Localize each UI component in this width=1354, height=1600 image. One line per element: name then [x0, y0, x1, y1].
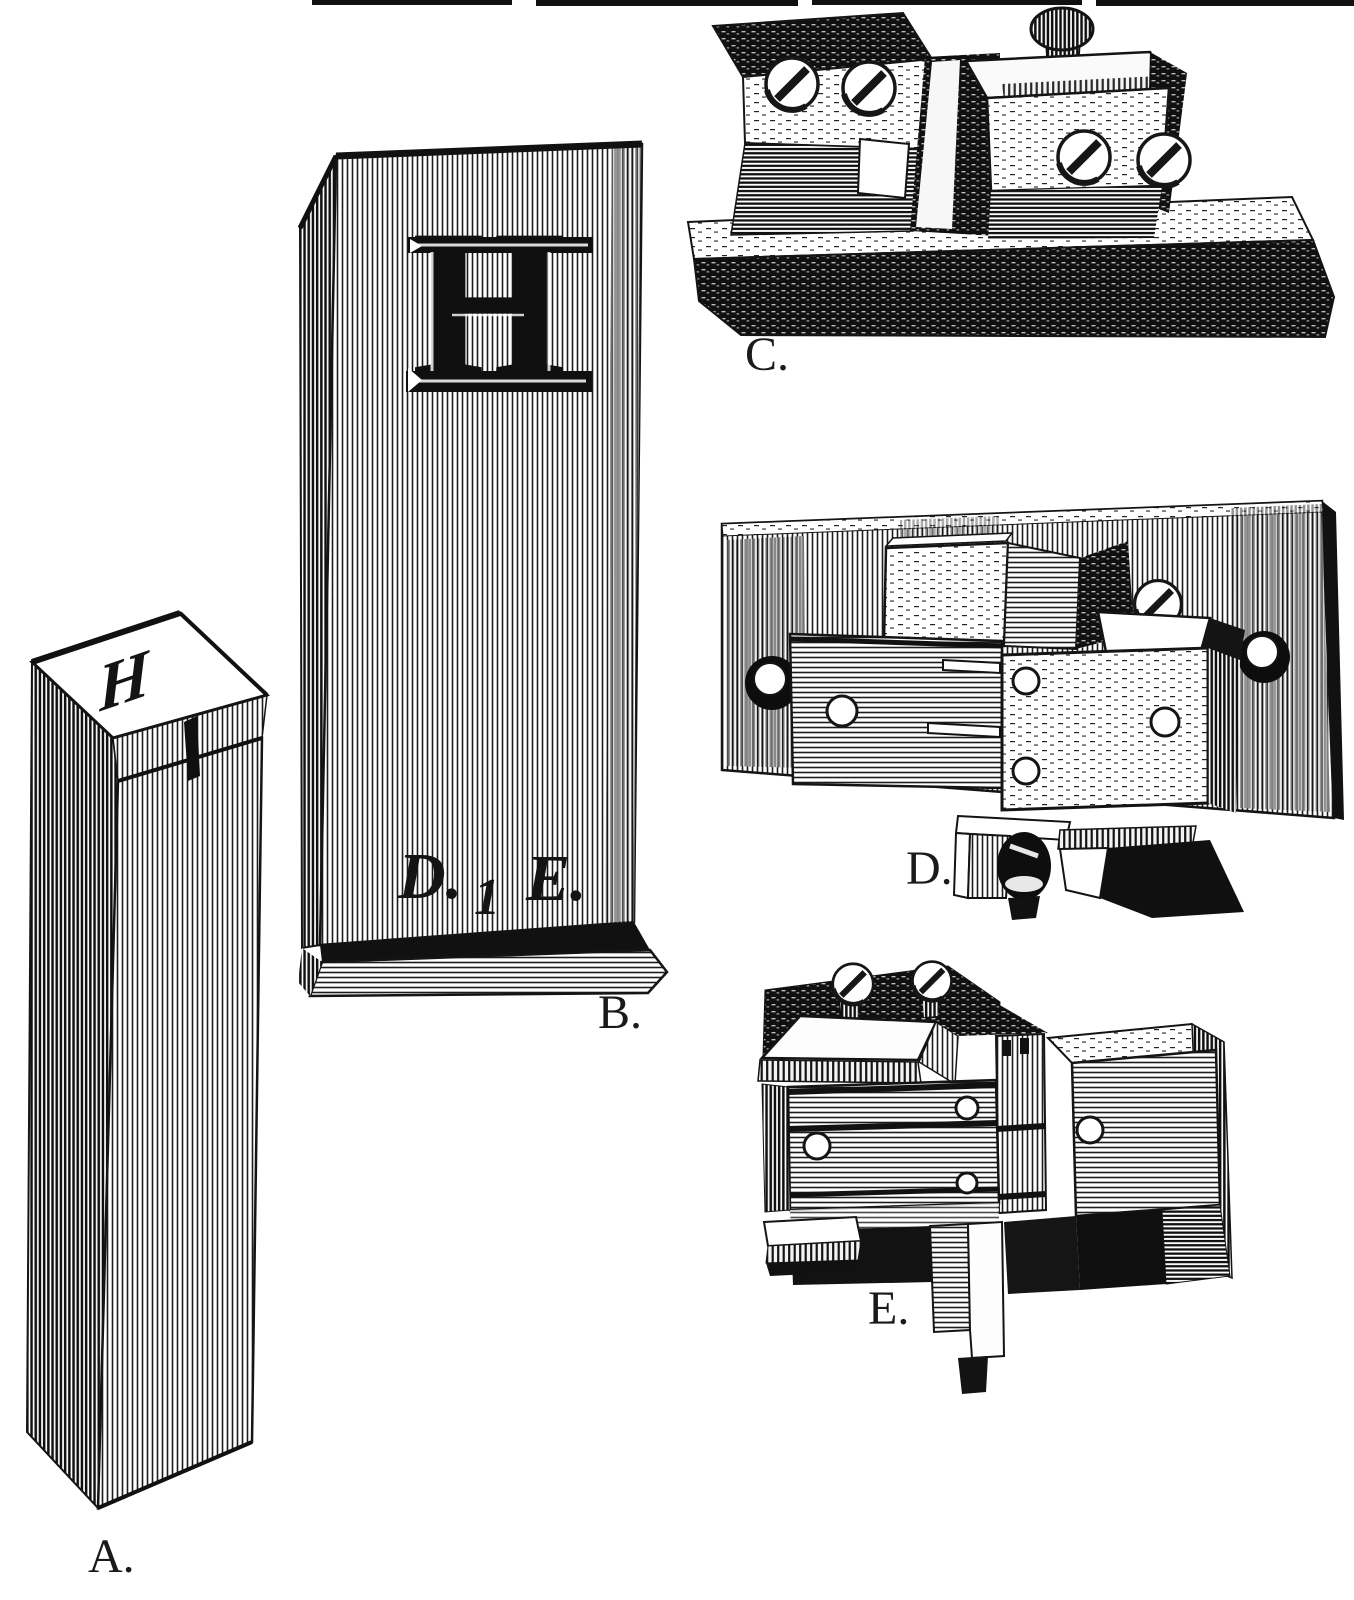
figure-e-label: E. [868, 1282, 909, 1335]
body-hole [804, 1133, 830, 1159]
tongue-hatched [930, 1224, 970, 1332]
artifact-mark [536, 0, 798, 6]
top-plate-knurl [758, 1060, 921, 1083]
wood-block-front [884, 543, 1008, 646]
column-mark [1020, 1038, 1029, 1054]
thumbscrew-tip [1008, 896, 1040, 920]
figure-d-label: D. [906, 842, 953, 895]
left-pin-head [754, 663, 786, 695]
artifact-mark [812, 0, 1082, 5]
scan-artifact-top-edge [312, 0, 1354, 6]
lower-step-dark [1076, 1210, 1166, 1290]
carriage-hole [1151, 708, 1179, 736]
engraving-plate: H D. 1 E. B. H A. [0, 0, 1354, 1600]
plate-hole [827, 696, 857, 726]
figure-b-label: B. [598, 986, 642, 1039]
founders-mark-numeral: 1 [474, 869, 500, 926]
carriage-hole [1013, 668, 1039, 694]
right-pin-head [1246, 636, 1278, 668]
carriage-side-shade [1208, 648, 1240, 813]
illustration-canvas: H D. 1 E. B. H A. [0, 0, 1354, 1600]
left-half-step-notch [858, 139, 909, 198]
body-hole [956, 1097, 978, 1119]
figure-e-mould-assembled: E. [758, 962, 1232, 1395]
clamp-shadow-arm [1100, 840, 1244, 918]
column-seam [997, 1126, 1045, 1129]
figure-b-type-model: H D. 1 E. B. [298, 144, 667, 1039]
artifact-mark [312, 0, 512, 5]
tongue-tip [958, 1356, 988, 1394]
figure-a-label: A. [88, 1530, 135, 1583]
figure-c-mould-on-base: H C. [688, 8, 1334, 381]
artifact-mark [1096, 0, 1354, 6]
slotted-screw [913, 962, 952, 1001]
wood-block-side [1004, 543, 1080, 649]
figure-d-mould-half: D. [722, 501, 1344, 920]
founders-mark-left: D. [397, 840, 462, 913]
column-seam [998, 1194, 1046, 1197]
knurled-thumbscrew [1031, 8, 1093, 50]
tongue-white [968, 1222, 1004, 1358]
type-a-front-face [98, 738, 262, 1508]
slide-rod [943, 660, 1000, 673]
slotted-screw [833, 964, 874, 1005]
slide-plate [790, 634, 1002, 788]
lower-step-hatched [1162, 1205, 1230, 1284]
right-half-lower-band [988, 186, 1162, 239]
thumbscrew-band [1005, 876, 1043, 892]
block-b-letter: H [414, 188, 564, 423]
founders-mark-right: E. [525, 842, 587, 915]
right-block-hole [1077, 1117, 1103, 1143]
under-block-shadow [1004, 1216, 1080, 1294]
carriage-hole [1013, 758, 1039, 784]
figure-c-label: C. [745, 328, 789, 381]
body-left-edge [762, 1084, 790, 1212]
column-mark [1002, 1040, 1011, 1056]
slotted-screw [1138, 134, 1190, 186]
slotted-screw [1058, 131, 1110, 183]
clamp-wedge [1060, 848, 1108, 898]
slotted-screw [766, 58, 818, 110]
slotted-screw [843, 62, 895, 114]
body-hole [957, 1173, 977, 1193]
figure-a-type-piece: H A. [27, 613, 267, 1583]
